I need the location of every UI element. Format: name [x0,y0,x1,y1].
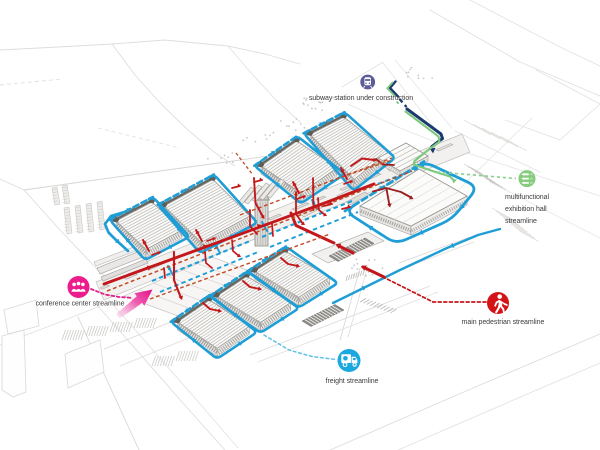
svg-text:subway station under construct: subway station under construction [309,95,413,102]
svg-text:streamline: streamline [505,218,537,225]
svg-text:conference center streamline: conference center streamline [36,301,125,308]
svg-text:freight streamline: freight streamline [326,378,379,385]
svg-text:multifunctional: multifunctional [505,194,549,201]
svg-text:exhibition hall: exhibition hall [505,206,547,213]
svg-text:main pedestrian streamline: main pedestrian streamline [462,319,545,326]
